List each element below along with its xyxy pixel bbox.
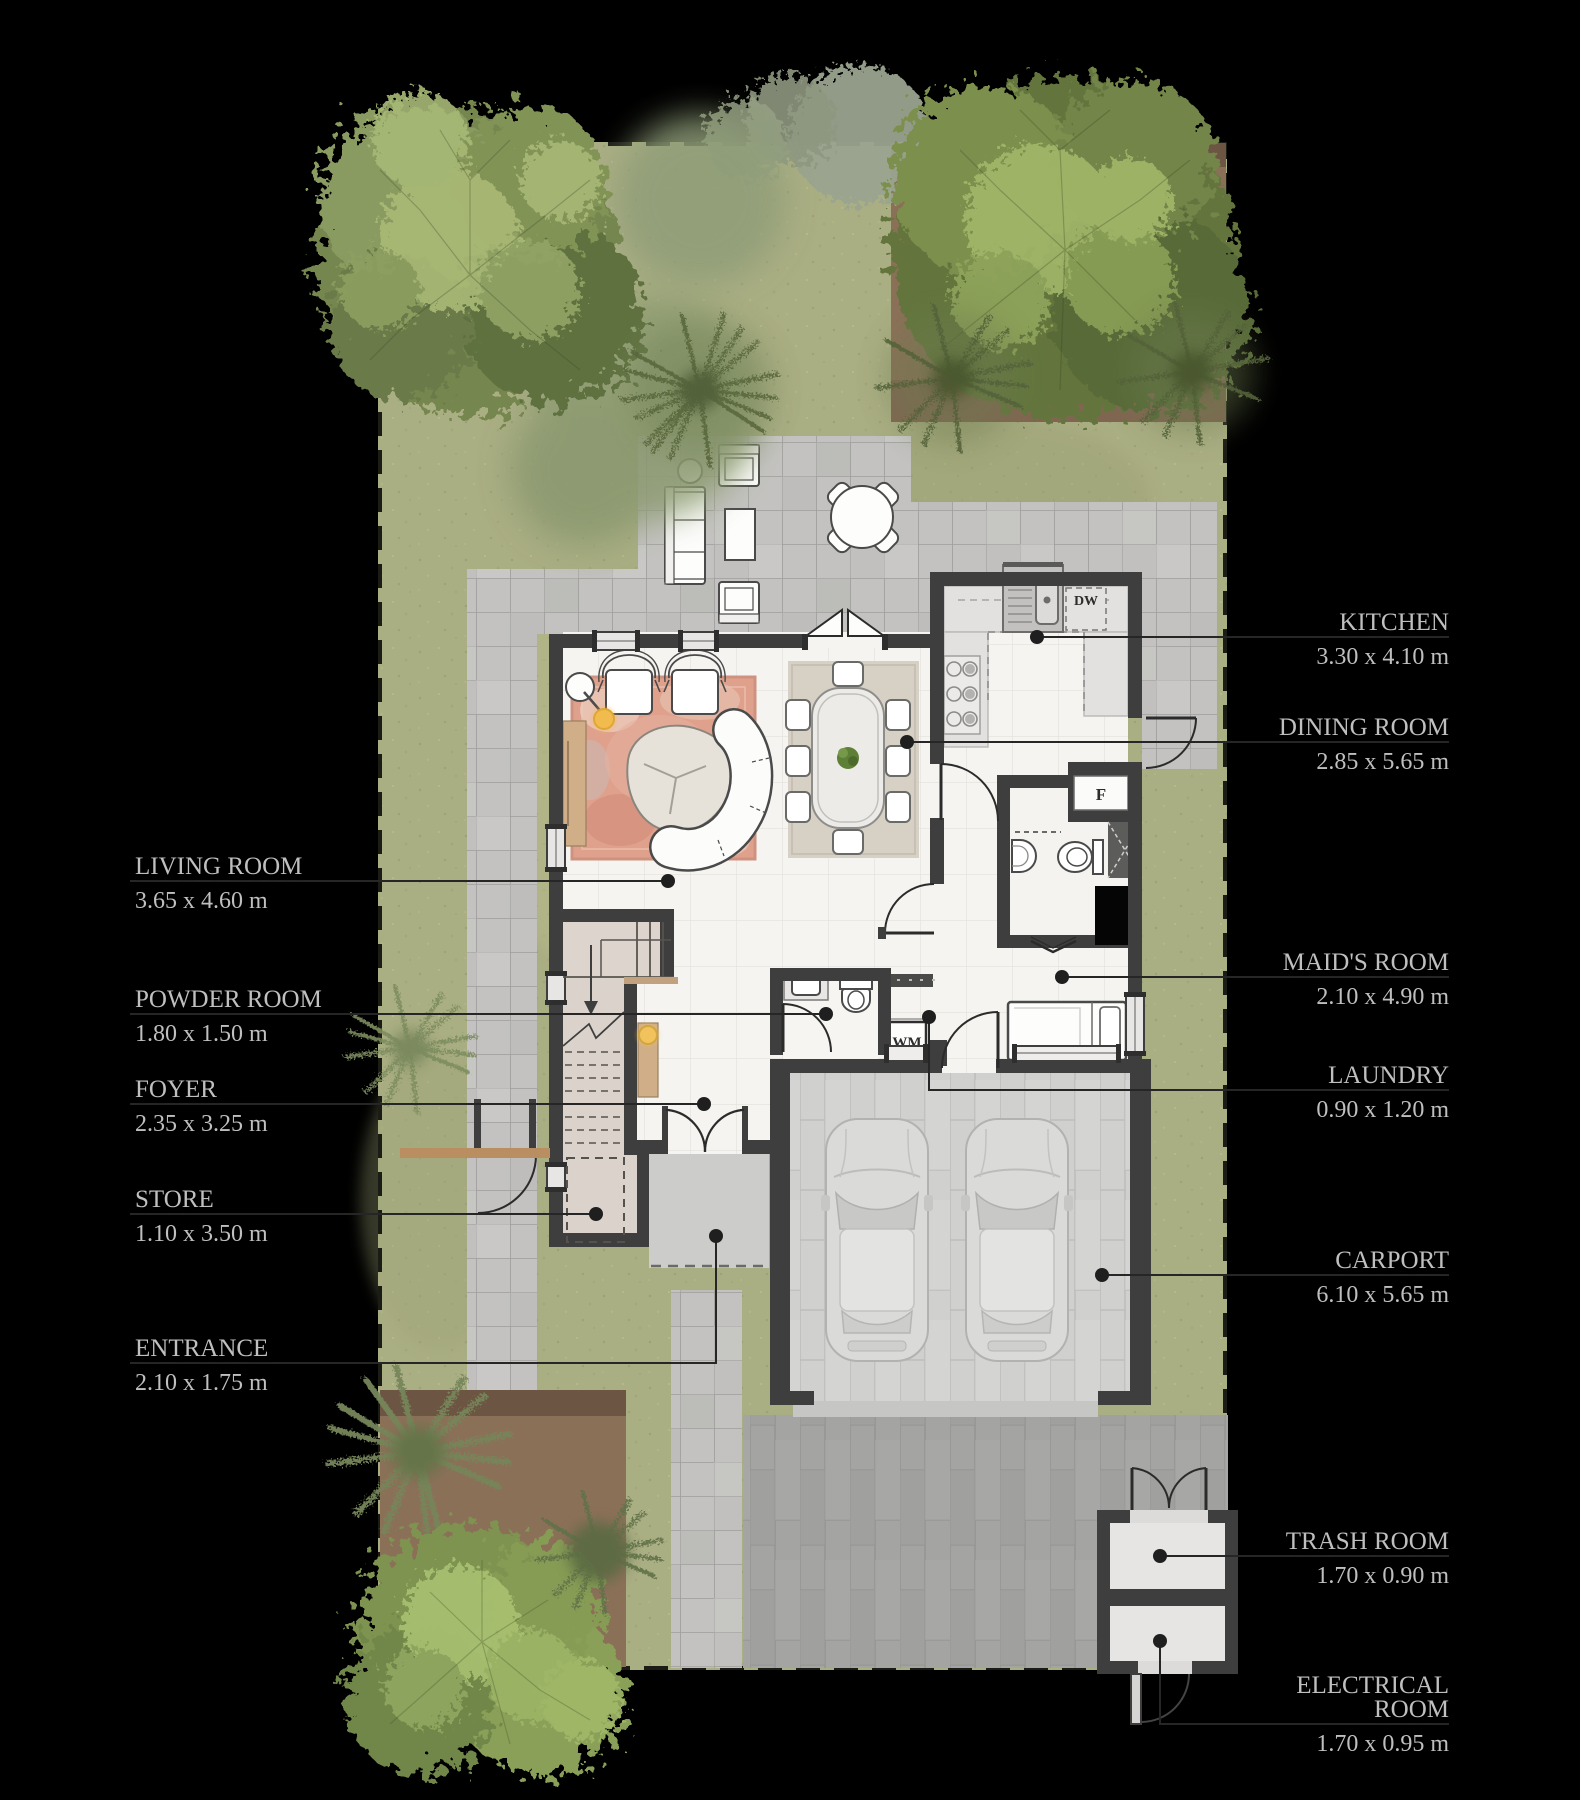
svg-text:LAUNDRY: LAUNDRY	[1328, 1062, 1449, 1089]
svg-text:6.10 x 5.65 m: 6.10 x 5.65 m	[1316, 1282, 1449, 1308]
svg-text:MAID'S ROOM: MAID'S ROOM	[1283, 949, 1449, 976]
svg-text:ENTRANCE: ENTRANCE	[135, 1335, 268, 1362]
svg-text:F: F	[1096, 785, 1106, 804]
svg-text:ROOM: ROOM	[1374, 1696, 1449, 1723]
svg-text:CARPORT: CARPORT	[1335, 1247, 1449, 1274]
svg-text:POWDER ROOM: POWDER ROOM	[135, 986, 322, 1013]
svg-text:0.90 x 1.20 m: 0.90 x 1.20 m	[1316, 1097, 1449, 1123]
svg-text:1.10 x 3.50 m: 1.10 x 3.50 m	[135, 1221, 268, 1247]
svg-text:FOYER: FOYER	[135, 1076, 217, 1103]
svg-text:1.70 x 0.90 m: 1.70 x 0.90 m	[1316, 1563, 1449, 1589]
svg-text:TRASH ROOM: TRASH ROOM	[1286, 1528, 1449, 1555]
svg-text:2.35 x 3.25 m: 2.35 x 3.25 m	[135, 1111, 268, 1137]
svg-text:3.65 x 4.60 m: 3.65 x 4.60 m	[135, 888, 268, 914]
svg-text:1.70 x 0.95 m: 1.70 x 0.95 m	[1316, 1731, 1449, 1757]
svg-text:2.10 x 1.75 m: 2.10 x 1.75 m	[135, 1370, 268, 1396]
svg-text:2.10 x 4.90 m: 2.10 x 4.90 m	[1316, 984, 1449, 1010]
svg-text:ELECTRICAL: ELECTRICAL	[1296, 1672, 1449, 1699]
svg-text:STORE: STORE	[135, 1186, 214, 1213]
svg-text:3.30 x 4.10 m: 3.30 x 4.10 m	[1316, 644, 1449, 670]
svg-text:DW: DW	[1074, 594, 1098, 609]
svg-text:LIVING ROOM: LIVING ROOM	[135, 853, 302, 880]
svg-text:1.80 x 1.50 m: 1.80 x 1.50 m	[135, 1021, 268, 1047]
svg-text:2.85 x 5.65 m: 2.85 x 5.65 m	[1316, 749, 1449, 775]
svg-text:KITCHEN: KITCHEN	[1339, 609, 1449, 636]
svg-text:DINING ROOM: DINING ROOM	[1279, 714, 1449, 741]
